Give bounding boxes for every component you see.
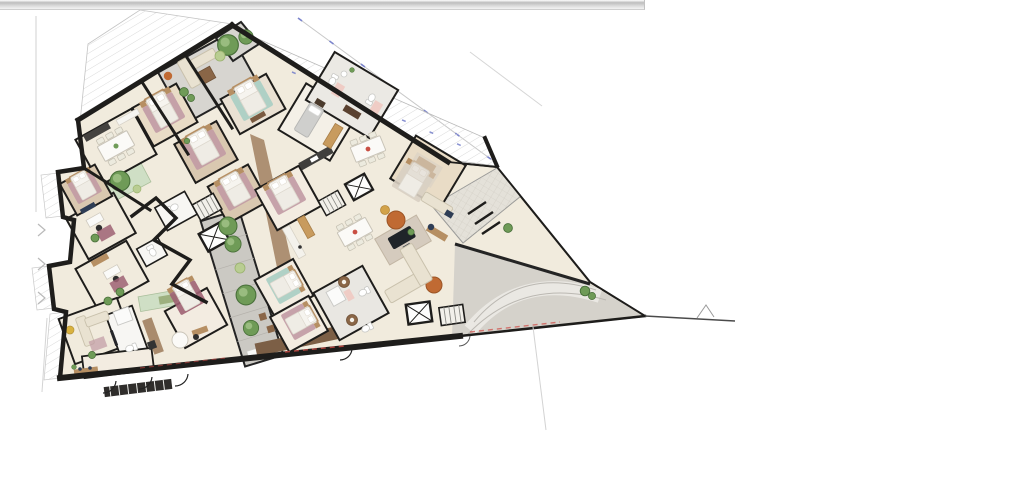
- office-chair: [193, 334, 199, 340]
- potted-plant: [504, 224, 513, 233]
- potted-plant: [187, 94, 194, 101]
- sink: [350, 318, 354, 322]
- tree: [243, 320, 258, 335]
- pouf: [66, 326, 74, 334]
- potted-plant: [180, 88, 189, 97]
- potted-plant: [580, 286, 590, 296]
- potted-plant: [408, 229, 414, 235]
- potted-plant: [72, 365, 77, 370]
- floor-plan: [0, 0, 1024, 499]
- round-tufted-rug: [387, 211, 405, 229]
- potted-plant: [350, 68, 355, 73]
- shrub: [215, 51, 225, 61]
- shrub: [133, 185, 141, 193]
- tree: [219, 217, 237, 235]
- pouf: [381, 206, 390, 215]
- potted-plant: [184, 138, 190, 144]
- survey-line: [470, 52, 542, 106]
- potted-plant: [116, 288, 124, 296]
- sink: [342, 280, 346, 284]
- tree: [225, 236, 241, 252]
- office-chair: [428, 224, 434, 230]
- survey-zigzag: [697, 305, 714, 318]
- shrub: [235, 263, 245, 273]
- potted-plant: [588, 292, 595, 299]
- elevator-shaft: [406, 301, 433, 324]
- staircase: [439, 304, 465, 325]
- page: [0, 0, 1024, 499]
- round-table: [172, 332, 188, 348]
- potted-plant: [91, 234, 99, 242]
- pouf: [164, 72, 172, 80]
- potted-plant: [104, 297, 112, 305]
- tree: [236, 285, 256, 305]
- survey-line: [645, 316, 735, 321]
- horizontal-scrollbar[interactable]: [0, 0, 645, 10]
- potted-plant: [88, 351, 95, 358]
- survey-line: [533, 327, 546, 430]
- sink: [341, 71, 347, 77]
- door-swing: [175, 374, 188, 386]
